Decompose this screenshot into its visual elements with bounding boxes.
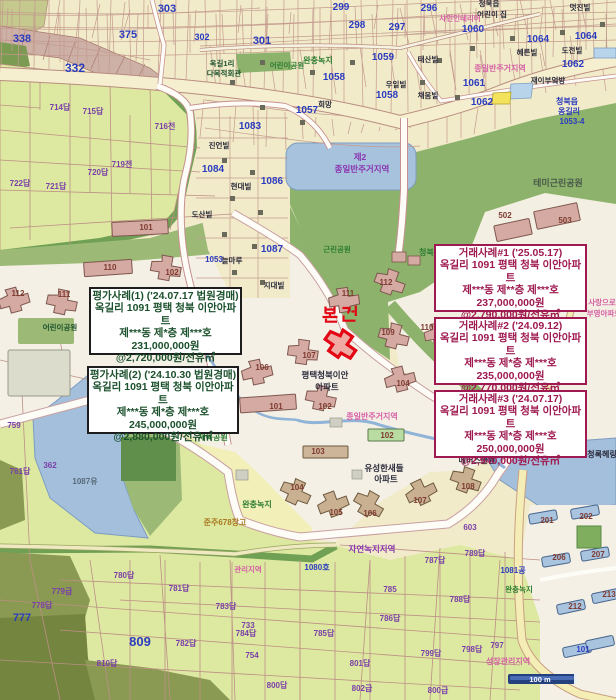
- svg-text:102: 102: [165, 268, 179, 277]
- svg-text:1060: 1060: [462, 24, 485, 35]
- svg-text:719전: 719전: [112, 159, 133, 169]
- svg-text:현대빌: 현대빌: [231, 181, 252, 191]
- svg-text:801답: 801답: [350, 658, 371, 668]
- svg-text:106: 106: [363, 509, 377, 518]
- svg-text:평택청북이안: 평택청북이안: [302, 370, 349, 380]
- svg-text:715답: 715답: [83, 106, 104, 116]
- svg-text:714답: 714답: [50, 102, 71, 112]
- svg-text:206: 206: [552, 553, 566, 562]
- svg-text:1062: 1062: [471, 97, 494, 108]
- svg-text:108: 108: [461, 482, 475, 491]
- svg-text:101: 101: [576, 645, 590, 654]
- svg-text:재이부엌방: 재이부엌방: [531, 75, 566, 85]
- svg-text:옥길1리: 옥길1리: [210, 58, 235, 68]
- svg-text:778답: 778답: [32, 600, 53, 610]
- svg-text:781답: 781답: [169, 583, 190, 593]
- svg-text:1057: 1057: [296, 105, 319, 116]
- svg-text:720답: 720답: [88, 167, 109, 177]
- svg-text:관리지역: 관리지역: [234, 564, 262, 574]
- svg-text:789답: 789답: [465, 548, 486, 558]
- svg-text:1064: 1064: [527, 34, 550, 45]
- svg-text:207: 207: [591, 550, 605, 559]
- svg-text:아파트: 아파트: [315, 382, 339, 392]
- svg-text:103: 103: [311, 447, 325, 456]
- svg-text:1062: 1062: [562, 59, 585, 70]
- svg-text:299: 299: [333, 2, 350, 13]
- svg-text:759: 759: [7, 421, 21, 430]
- svg-text:105: 105: [329, 508, 343, 517]
- svg-text:106: 106: [255, 363, 269, 372]
- svg-text:754: 754: [245, 651, 259, 660]
- svg-text:101: 101: [269, 402, 283, 411]
- svg-text:1084: 1084: [202, 164, 225, 175]
- svg-text:302: 302: [194, 32, 209, 42]
- svg-text:옹길리: 옹길리: [558, 106, 580, 116]
- svg-text:1081공: 1081공: [500, 566, 526, 575]
- svg-text:1087유: 1087유: [72, 477, 98, 486]
- svg-text:완충녹지: 완충녹지: [303, 55, 332, 65]
- svg-text:희망: 희망: [318, 99, 332, 109]
- svg-text:완충녹지: 완충녹지: [242, 499, 271, 509]
- svg-text:112: 112: [12, 289, 25, 298]
- svg-text:785: 785: [383, 585, 397, 594]
- svg-text:301: 301: [253, 35, 271, 47]
- svg-text:716전: 716전: [155, 121, 176, 131]
- svg-text:787답: 787답: [425, 555, 446, 565]
- svg-text:준주678창고: 준주678창고: [204, 517, 247, 527]
- svg-text:104: 104: [396, 379, 410, 388]
- svg-text:779급: 779급: [52, 587, 73, 596]
- svg-text:1087: 1087: [261, 244, 284, 255]
- svg-text:111: 111: [342, 289, 355, 298]
- svg-text:지대빌: 지대빌: [264, 280, 285, 290]
- svg-text:혜른빌: 혜른빌: [517, 47, 538, 57]
- svg-text:1058: 1058: [323, 72, 346, 83]
- svg-text:다목적회관: 다목적회관: [207, 68, 242, 78]
- svg-text:1086: 1086: [261, 176, 284, 187]
- svg-text:샤인인테리어: 샤인인테리어: [439, 13, 480, 23]
- svg-text:802급: 802급: [352, 684, 373, 693]
- svg-text:완충녹지: 완충녹지: [505, 584, 533, 594]
- svg-text:멋진빌: 멋진빌: [570, 2, 591, 12]
- svg-text:성장관리지역: 성장관리지역: [486, 656, 530, 666]
- svg-text:800답: 800답: [267, 680, 288, 690]
- svg-text:태산빌: 태산빌: [418, 54, 439, 64]
- svg-text:1061: 1061: [463, 78, 486, 89]
- svg-text:1080호: 1080호: [304, 562, 330, 572]
- svg-text:101: 101: [139, 223, 153, 232]
- svg-text:110: 110: [421, 323, 434, 332]
- svg-text:근린공원: 근린공원: [323, 244, 351, 254]
- svg-text:1059: 1059: [372, 52, 395, 63]
- svg-text:진언빌: 진언빌: [209, 140, 230, 150]
- svg-text:도전빌: 도전빌: [562, 45, 583, 55]
- svg-text:733: 733: [241, 621, 255, 630]
- svg-text:503: 503: [558, 216, 572, 225]
- svg-text:102: 102: [318, 402, 332, 411]
- svg-text:104: 104: [290, 483, 304, 492]
- svg-text:102: 102: [380, 431, 394, 440]
- svg-text:298: 298: [349, 20, 366, 31]
- svg-text:799답: 799답: [421, 648, 442, 658]
- svg-text:212: 212: [568, 602, 582, 611]
- svg-text:303: 303: [158, 3, 176, 15]
- svg-text:1083: 1083: [239, 121, 262, 132]
- svg-text:785답: 785답: [314, 628, 335, 638]
- svg-text:780답: 780답: [114, 570, 135, 580]
- svg-text:종일반주거지역: 종일반주거지역: [335, 164, 390, 174]
- svg-text:자연녹지지역: 자연녹지지역: [349, 544, 396, 554]
- svg-text:유성한새들: 유성한새들: [364, 463, 403, 473]
- svg-text:297: 297: [389, 22, 406, 33]
- svg-text:362: 362: [43, 461, 57, 470]
- svg-text:제2: 제2: [354, 152, 367, 162]
- svg-text:어린이공원: 어린이공원: [270, 60, 305, 70]
- svg-text:어린이공원: 어린이공원: [43, 322, 78, 332]
- svg-text:788답: 788답: [450, 594, 471, 604]
- svg-text:213: 213: [602, 590, 616, 599]
- svg-text:110: 110: [104, 263, 117, 272]
- svg-text:800급: 800급: [428, 686, 449, 695]
- svg-text:809: 809: [129, 634, 151, 649]
- svg-text:청북읍: 청북읍: [556, 96, 579, 106]
- svg-text:797: 797: [490, 641, 504, 650]
- svg-text:도산빌: 도산빌: [192, 209, 213, 219]
- svg-text:786답: 786답: [380, 613, 401, 623]
- svg-text:100 m: 100 m: [529, 675, 551, 684]
- svg-text:어린이 집: 어린이 집: [477, 9, 507, 19]
- svg-text:296: 296: [421, 3, 438, 14]
- svg-text:502: 502: [498, 211, 512, 220]
- svg-text:아파트: 아파트: [374, 474, 398, 484]
- svg-text:늘마루: 늘마루: [222, 255, 243, 265]
- svg-text:112: 112: [380, 278, 393, 287]
- svg-text:201: 201: [540, 516, 554, 525]
- svg-text:338: 338: [13, 33, 31, 45]
- svg-text:107: 107: [413, 496, 427, 505]
- svg-text:우일빌: 우일빌: [386, 79, 407, 89]
- svg-text:202: 202: [579, 512, 593, 521]
- svg-text:783답: 783답: [216, 601, 237, 611]
- svg-text:청북읍: 청북읍: [479, 0, 500, 8]
- svg-text:777: 777: [13, 612, 31, 624]
- svg-text:청록헤링: 청록헤링: [587, 449, 616, 459]
- svg-text:부영아파트: 부영아파트: [587, 308, 616, 318]
- svg-text:종일반주거지역: 종일반주거지역: [474, 63, 526, 73]
- svg-text:채움빌: 채움빌: [418, 90, 439, 100]
- svg-text:798답: 798답: [462, 644, 483, 654]
- svg-text:종일반주거지역: 종일반주거지역: [346, 411, 398, 421]
- svg-text:782답: 782답: [176, 638, 197, 648]
- svg-text:109: 109: [381, 328, 395, 337]
- svg-text:332: 332: [65, 61, 85, 75]
- svg-text:107: 107: [302, 351, 316, 360]
- svg-text:111: 111: [58, 290, 71, 299]
- svg-text:사랑으로: 사랑으로: [588, 297, 616, 307]
- svg-text:1064: 1064: [575, 31, 598, 42]
- svg-text:1058: 1058: [376, 90, 399, 101]
- svg-text:1053-4: 1053-4: [560, 117, 585, 126]
- svg-text:603: 603: [463, 523, 477, 532]
- svg-text:761답: 761답: [10, 466, 31, 476]
- svg-text:375: 375: [119, 29, 137, 41]
- svg-text:722답: 722답: [10, 178, 31, 188]
- svg-text:810답: 810답: [97, 658, 118, 668]
- svg-text:721답: 721답: [46, 181, 67, 191]
- svg-text:테미근린공원: 테미근린공원: [533, 177, 583, 188]
